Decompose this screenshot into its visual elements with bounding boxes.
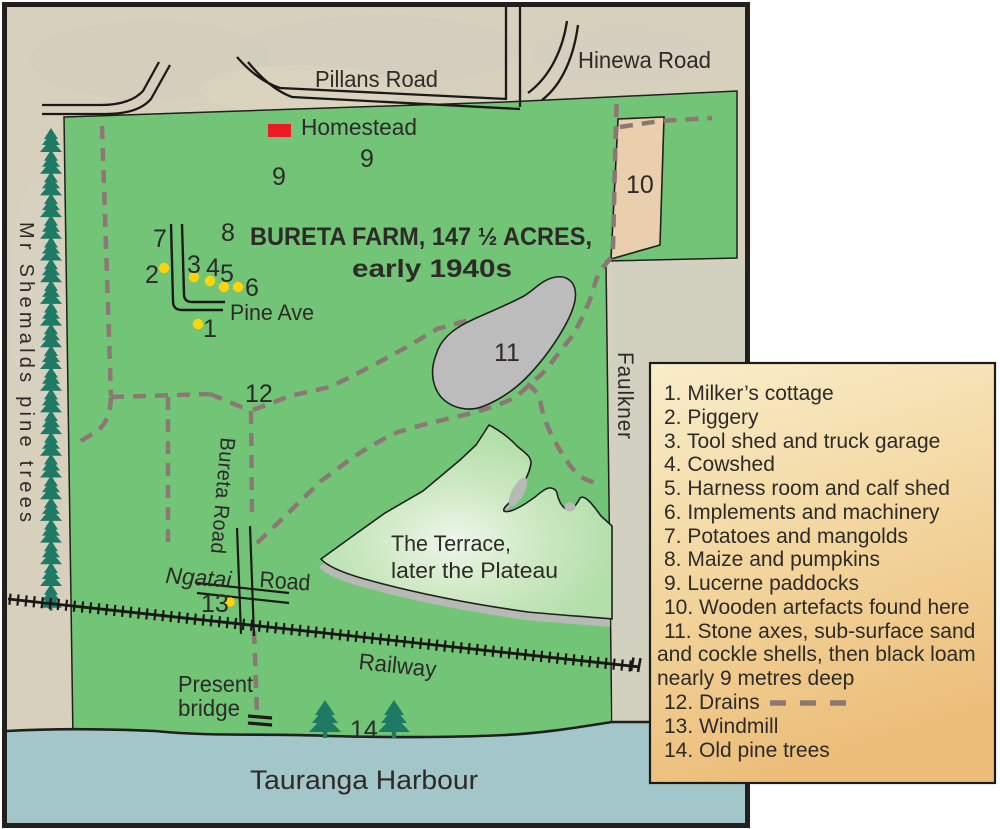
svg-text:4. Cowshed: 4. Cowshed [664, 453, 775, 476]
svg-text:Homestead: Homestead [301, 114, 417, 140]
svg-text:13: 13 [201, 590, 229, 618]
svg-text:nearly 9 metres deep: nearly 9 metres deep [657, 667, 854, 690]
svg-text:7: 7 [153, 225, 167, 253]
svg-text:later the Plateau: later the Plateau [391, 558, 558, 583]
svg-text:14: 14 [350, 716, 378, 744]
svg-text:Mr Shemalds pine trees: Mr Shemalds pine trees [15, 222, 37, 522]
svg-text:Tauranga Harbour: Tauranga Harbour [250, 765, 478, 795]
svg-text:14. Old pine trees: 14. Old pine trees [664, 739, 830, 762]
svg-text:2. Piggery: 2. Piggery [664, 406, 759, 429]
svg-text:1. Milker’s cottage: 1. Milker’s cottage [664, 382, 834, 405]
svg-text:Pine Ave: Pine Ave [230, 300, 314, 325]
svg-text:12: 12 [245, 380, 273, 408]
svg-text:BURETA FARM, 147 ½ ACRES,: BURETA FARM, 147 ½ ACRES, [250, 223, 592, 251]
svg-text:Pillans Road: Pillans Road [315, 66, 438, 92]
svg-text:13. Windmill: 13. Windmill [664, 715, 778, 738]
svg-text:3. Tool shed and truck garage: 3. Tool shed and truck garage [664, 430, 940, 453]
svg-text:10: 10 [626, 171, 654, 199]
svg-text:11: 11 [494, 339, 520, 367]
svg-text:2: 2 [145, 261, 159, 289]
svg-text:6: 6 [245, 274, 259, 302]
svg-text:5. Harness room and calf shed: 5. Harness room and calf shed [664, 477, 950, 500]
svg-text:Present: Present [178, 671, 254, 697]
svg-text:8: 8 [221, 219, 235, 247]
svg-text:3: 3 [187, 251, 201, 279]
svg-text:Road: Road [259, 566, 312, 595]
svg-text:12. Drains: 12. Drains [664, 691, 760, 714]
svg-text:7. Potatoes and mangolds: 7. Potatoes and mangolds [664, 525, 908, 548]
svg-text:Faulkner: Faulkner [613, 352, 638, 440]
svg-text:6. Implements and machinery: 6. Implements and machinery [664, 501, 940, 524]
svg-text:10. Wooden artefacts found her: 10. Wooden artefacts found here [664, 596, 969, 619]
svg-text:9. Lucerne paddocks: 9. Lucerne paddocks [664, 572, 859, 595]
svg-text:1: 1 [203, 315, 217, 343]
svg-text:11. Stone axes, sub-surface sa: 11. Stone axes, sub-surface sand [664, 620, 975, 643]
svg-text:and cockle shells, then black: and cockle shells, then black loam [657, 643, 976, 666]
svg-text:Ngatai: Ngatai [165, 562, 234, 593]
svg-text:9: 9 [360, 145, 374, 173]
svg-text:8. Maize and pumpkins: 8. Maize and pumpkins [664, 548, 880, 571]
svg-text:Hinewa Road: Hinewa Road [578, 47, 711, 73]
svg-text:bridge: bridge [178, 695, 240, 721]
svg-text:early 1940s: early 1940s [352, 255, 512, 283]
svg-text:5: 5 [220, 260, 234, 288]
svg-text:9: 9 [272, 163, 286, 191]
svg-text:The Terrace,: The Terrace, [391, 531, 511, 556]
svg-text:4: 4 [206, 254, 220, 282]
